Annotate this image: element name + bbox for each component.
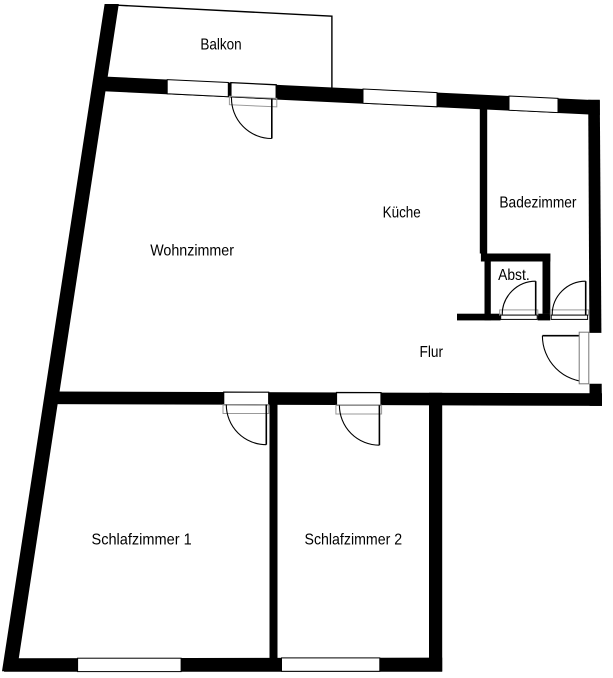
- svg-text:Küche: Küche: [383, 205, 421, 222]
- svg-text:Schlafzimmer 1: Schlafzimmer 1: [92, 532, 192, 549]
- svg-text:Schlafzimmer 2: Schlafzimmer 2: [305, 532, 403, 549]
- svg-text:Balkon: Balkon: [200, 37, 241, 54]
- svg-text:Wohnzimmer: Wohnzimmer: [150, 243, 234, 260]
- svg-text:Abst.: Abst.: [498, 267, 530, 284]
- svg-text:Flur: Flur: [420, 344, 444, 361]
- svg-text:Badezimmer: Badezimmer: [499, 195, 577, 212]
